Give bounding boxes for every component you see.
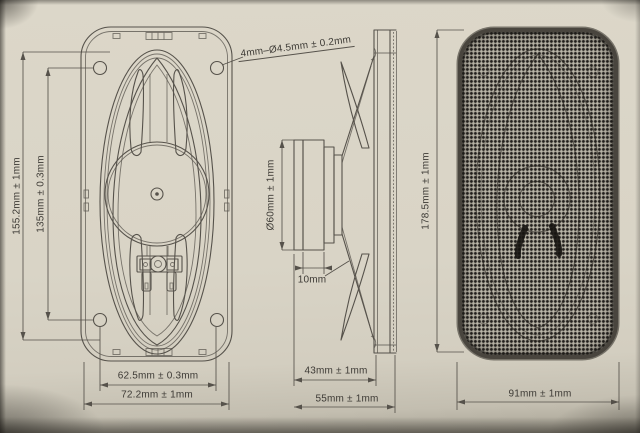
mounting-hole	[211, 314, 224, 327]
speaker-technical-drawing-photo: 155.2mm ± 1mm 135mm ± 0.3mm 62.5mm ± 0.3…	[0, 0, 640, 433]
dim-front-width: 91mm ± 1mm	[508, 389, 571, 400]
mounting-hole	[211, 62, 224, 75]
dim-rear-height: 155.2mm ± 1mm	[12, 157, 23, 235]
dim-magnet-thickness: 10mm	[298, 275, 327, 286]
dim-rear-hole-spacing-v: 135mm ± 0.3mm	[36, 155, 47, 233]
dust-cap-ring	[504, 166, 570, 232]
dim-overall-depth: 55mm ± 1mm	[315, 394, 378, 405]
dim-mounting-depth: 43mm ± 1mm	[304, 366, 367, 377]
grille-see-through-details	[462, 32, 614, 355]
mounting-hole	[94, 314, 107, 327]
mounting-hole	[94, 62, 107, 75]
dim-front-height: 178.5mm ± 1mm	[421, 152, 432, 230]
side-view-drawing	[280, 30, 397, 413]
lead-wire	[518, 228, 525, 256]
rear-view-drawing	[21, 27, 244, 410]
lead-wire	[552, 226, 559, 254]
dim-magnet-diameter: Ø60mm ± 1mm	[266, 159, 277, 230]
front-view-grille	[458, 28, 618, 359]
dim-rear-width: 72.2mm ± 1mm	[121, 390, 193, 401]
dim-rear-hole-spacing-h: 62.5mm ± 0.3mm	[118, 371, 199, 382]
